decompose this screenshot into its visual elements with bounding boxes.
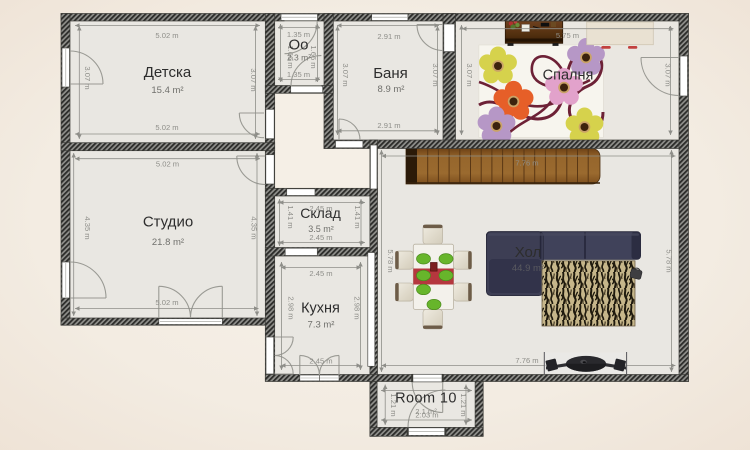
svg-text:3.07 m: 3.07 m [465, 63, 474, 86]
svg-text:Room 10: Room 10 [395, 391, 457, 407]
svg-text:1.41 m: 1.41 m [286, 205, 295, 228]
svg-text:4.35 m: 4.35 m [250, 216, 259, 239]
svg-text:5.02 m: 5.02 m [155, 298, 178, 307]
svg-text:5.02 m: 5.02 m [155, 123, 178, 132]
svg-text:3.07 m: 3.07 m [664, 63, 673, 86]
svg-text:5.75 m: 5.75 m [556, 31, 579, 40]
svg-text:5.78 m: 5.78 m [386, 249, 395, 272]
svg-text:4.35 m: 4.35 m [83, 216, 92, 239]
svg-text:Спалня: Спалня [543, 68, 594, 84]
svg-text:7.76 m: 7.76 m [515, 159, 538, 168]
svg-text:2.03 m: 2.03 m [415, 411, 438, 420]
svg-text:7.3 m²: 7.3 m² [308, 320, 335, 331]
svg-text:15.4 m²: 15.4 m² [151, 85, 183, 96]
svg-text:2.91 m: 2.91 m [377, 32, 400, 41]
svg-text:3.07 m: 3.07 m [341, 63, 350, 86]
svg-text:3.07 m: 3.07 m [431, 63, 440, 86]
svg-text:2.45 m: 2.45 m [309, 233, 332, 242]
svg-text:1.35 m: 1.35 m [287, 70, 310, 79]
svg-text:Хол: Хол [515, 244, 542, 261]
svg-text:5.02 m: 5.02 m [155, 31, 178, 40]
svg-text:8.9 m²: 8.9 m² [378, 84, 405, 95]
svg-text:5.02 m: 5.02 m [156, 160, 179, 169]
svg-text:Баня: Баня [373, 65, 408, 82]
svg-text:7.76 m: 7.76 m [515, 356, 538, 365]
svg-text:44.9 m²: 44.9 m² [512, 263, 544, 274]
svg-text:2.45 m: 2.45 m [309, 357, 332, 366]
svg-text:1.21 m: 1.21 m [459, 393, 468, 416]
svg-text:5.78 m: 5.78 m [665, 249, 674, 272]
svg-text:3.5 m²: 3.5 m² [308, 224, 334, 234]
svg-text:Склад: Склад [300, 205, 341, 221]
svg-text:Детска: Детска [144, 64, 192, 81]
svg-text:Студио: Студио [143, 214, 193, 231]
svg-text:Кухня: Кухня [301, 301, 340, 317]
svg-text:2.98 m: 2.98 m [353, 296, 362, 319]
svg-text:3.07 m: 3.07 m [83, 66, 92, 89]
svg-text:2.45 m: 2.45 m [309, 269, 332, 278]
svg-text:21.8 m²: 21.8 m² [152, 237, 184, 248]
svg-text:1.41 m: 1.41 m [353, 205, 362, 228]
svg-text:2.98 m: 2.98 m [287, 296, 296, 319]
svg-text:3.07 m: 3.07 m [249, 68, 258, 91]
svg-text:2.91 m: 2.91 m [377, 121, 400, 130]
svg-text:2.3 m²: 2.3 m² [287, 53, 311, 63]
svg-text:Оо: Оо [288, 37, 308, 54]
